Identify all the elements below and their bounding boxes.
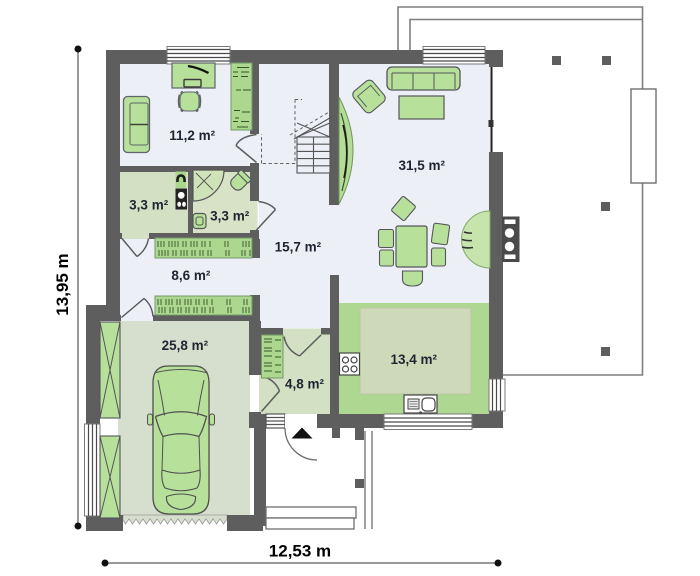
svg-text:12,53 m: 12,53 m (269, 542, 331, 561)
svg-text:11,2 m²: 11,2 m² (169, 128, 215, 143)
svg-text:25,8 m²: 25,8 m² (162, 338, 209, 353)
svg-text:15,7 m²: 15,7 m² (275, 240, 322, 255)
svg-text:31,5 m²: 31,5 m² (399, 158, 446, 173)
svg-text:3,3 m²: 3,3 m² (129, 198, 169, 213)
svg-text:8,6 m²: 8,6 m² (171, 268, 211, 283)
svg-text:13,4 m²: 13,4 m² (391, 352, 438, 367)
svg-text:4,8 m²: 4,8 m² (285, 377, 325, 392)
svg-text:3,3 m²: 3,3 m² (210, 209, 250, 224)
svg-text:13,95 m: 13,95 m (53, 253, 72, 315)
